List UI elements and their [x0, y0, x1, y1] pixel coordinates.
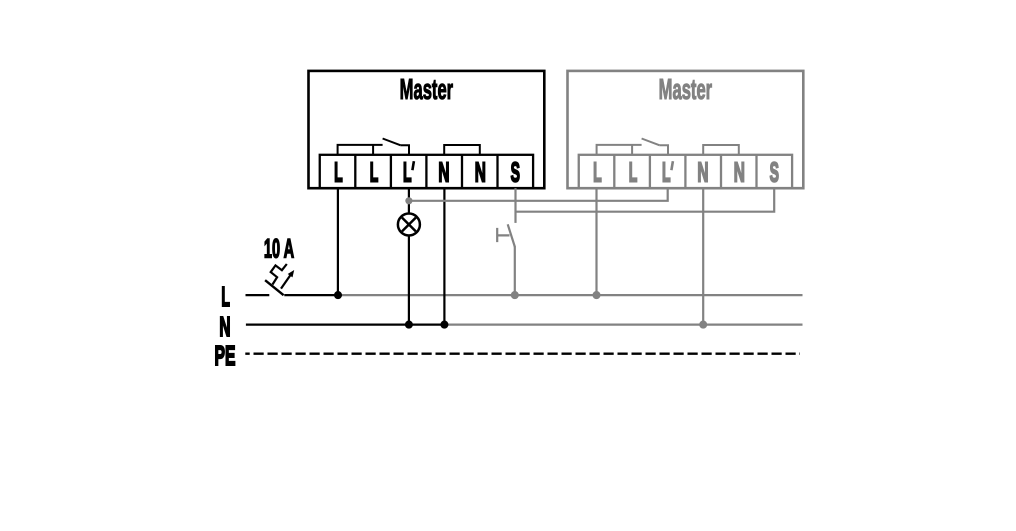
svg-text:L: L [334, 156, 343, 188]
svg-text:PE: PE [215, 339, 236, 371]
svg-text:L: L [370, 156, 379, 188]
svg-text:L: L [662, 156, 671, 188]
svg-text:L: L [403, 156, 412, 188]
svg-text:S: S [770, 156, 779, 188]
svg-text:N: N [475, 157, 486, 188]
svg-text:L: L [221, 281, 230, 313]
svg-text:S: S [511, 156, 520, 188]
svg-text:Master: Master [400, 74, 453, 106]
svg-text:Master: Master [659, 74, 712, 106]
svg-text:L: L [629, 156, 638, 188]
svg-text:10 A: 10 A [264, 233, 294, 264]
svg-text:N: N [219, 311, 230, 342]
svg-text:N: N [734, 157, 745, 188]
svg-text:N: N [438, 157, 449, 188]
svg-text:L: L [593, 156, 602, 188]
svg-text:N: N [697, 157, 708, 188]
